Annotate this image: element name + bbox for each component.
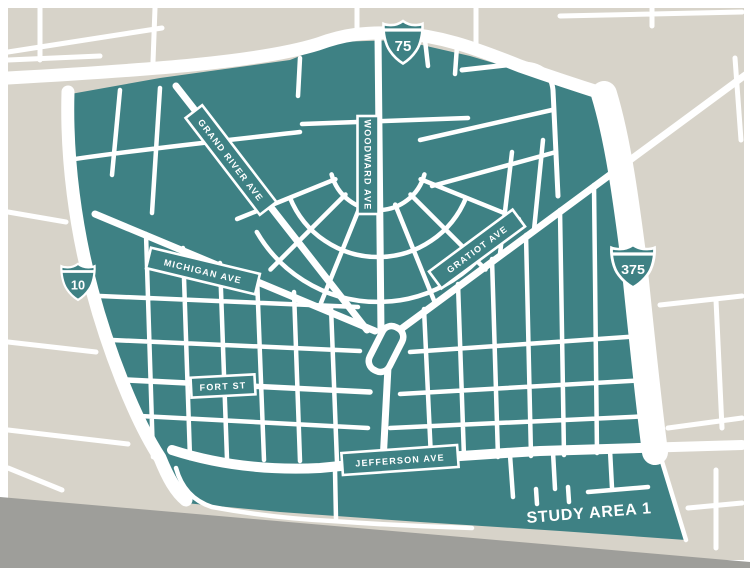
study-area-map: 75 10 375 GRAND RIVER AVE WOODWARD AVE M… [0, 0, 750, 584]
shield-75-number: 75 [395, 38, 412, 55]
woodward-ave-label: WOODWARD AVE [363, 120, 373, 211]
shield-375-number: 375 [621, 263, 645, 277]
shield-10-number: 10 [71, 277, 85, 292]
road-label-woodward-ave: WOODWARD AVE [358, 116, 379, 214]
study-area-map-page: 75 10 375 GRAND RIVER AVE WOODWARD AVE M… [0, 0, 750, 584]
road-label-fort-st: FORT ST [191, 374, 256, 397]
